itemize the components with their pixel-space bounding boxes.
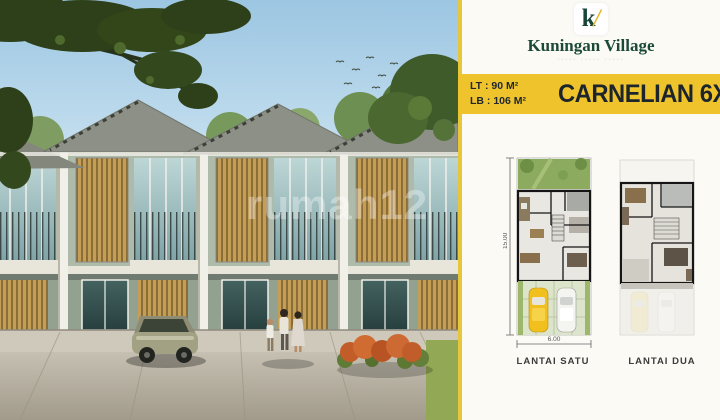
floorplan-lantai-satu: 15.00 xyxy=(503,133,603,351)
label-lantai-satu: LANTAI SATU xyxy=(503,356,603,367)
spec-lb: LB : 106 M² xyxy=(470,94,558,109)
product-title: CARNELIAN 6X1 xyxy=(558,80,720,109)
floorplan-lantai-dua xyxy=(616,133,700,351)
brand-tagline: ····· ····· ····· xyxy=(462,57,720,63)
info-panel: k/ Kuningan Village ····· ····· ····· LT… xyxy=(462,0,720,420)
label-lantai-dua: LANTAI DUA xyxy=(612,356,712,367)
brand-block: k/ Kuningan Village ····· ····· ····· xyxy=(462,3,720,63)
dim-depth: 15.00 xyxy=(503,232,509,249)
house-render-photo: rumah12 xyxy=(0,0,458,420)
spec-lt: LT : 90 M² xyxy=(470,79,558,94)
ghost-carport xyxy=(621,289,693,335)
brand-logo-icon: k/ xyxy=(574,3,608,35)
lawn xyxy=(426,340,458,420)
dim-width: 6.00 xyxy=(548,336,561,343)
flyer: rumah12 k/ Kuningan Village ····· ····· … xyxy=(0,0,720,420)
brand-name: Kuningan Village xyxy=(462,36,720,56)
watermark: rumah12 xyxy=(246,180,458,232)
spec-badge: LT : 90 M² LB : 106 M² CARNELIAN 6X1 xyxy=(458,74,720,114)
area-specs: LT : 90 M² LB : 106 M² xyxy=(458,79,558,108)
logo-slash: / xyxy=(593,5,600,32)
